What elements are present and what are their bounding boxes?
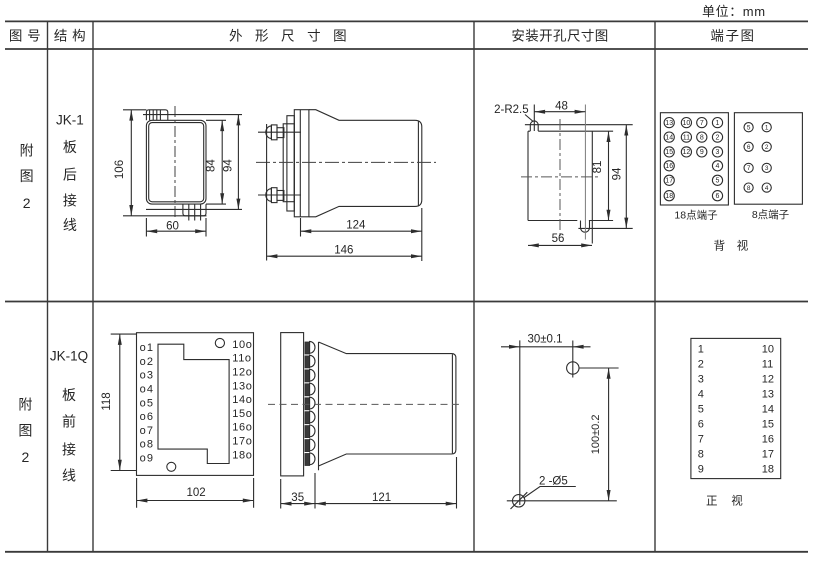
svg-text:11: 11	[683, 134, 690, 141]
svg-text:118: 118	[101, 392, 113, 410]
svg-text:线: 线	[63, 217, 77, 233]
svg-text:15: 15	[762, 419, 774, 431]
svg-text:14o: 14o	[232, 394, 252, 406]
svg-text:外 形 尺 寸 图: 外 形 尺 寸 图	[229, 29, 351, 44]
svg-text:60: 60	[166, 221, 179, 233]
svg-text:8: 8	[747, 185, 751, 192]
svg-text:11: 11	[762, 359, 773, 371]
svg-text:30±0.1: 30±0.1	[527, 333, 562, 345]
svg-text:接: 接	[62, 441, 76, 457]
svg-text:1: 1	[716, 120, 720, 127]
svg-text:2: 2	[765, 144, 769, 151]
svg-text:附: 附	[18, 397, 32, 413]
svg-text:3: 3	[716, 149, 720, 156]
svg-text:5: 5	[747, 124, 751, 131]
svg-text:o3: o3	[140, 370, 155, 382]
svg-text:11o: 11o	[232, 353, 251, 365]
svg-text:2: 2	[716, 134, 720, 141]
svg-text:2 -Ø5: 2 -Ø5	[539, 475, 568, 487]
svg-text:7: 7	[747, 165, 751, 172]
svg-text:JK-1Q: JK-1Q	[50, 348, 88, 363]
svg-text:图: 图	[20, 168, 34, 184]
svg-text:o1: o1	[140, 342, 155, 354]
svg-text:安装开孔尺寸图: 安装开孔尺寸图	[511, 29, 608, 44]
svg-text:12o: 12o	[232, 367, 252, 379]
svg-text:13o: 13o	[232, 380, 252, 392]
svg-text:o4: o4	[140, 384, 155, 396]
svg-text:附: 附	[20, 142, 34, 158]
svg-text:13: 13	[665, 120, 673, 127]
svg-text:17: 17	[665, 178, 673, 185]
svg-text:1: 1	[765, 124, 769, 131]
svg-text:后: 后	[63, 167, 77, 183]
svg-text:o6: o6	[140, 411, 155, 423]
svg-text:94: 94	[222, 159, 234, 172]
svg-text:10: 10	[762, 344, 774, 356]
svg-text:4: 4	[716, 163, 720, 170]
svg-text:121: 121	[372, 492, 391, 504]
svg-text:14: 14	[665, 134, 673, 141]
svg-text:16: 16	[762, 434, 774, 446]
svg-text:6: 6	[716, 193, 720, 200]
svg-text:48: 48	[555, 100, 568, 112]
svg-text:17o: 17o	[232, 436, 252, 448]
svg-text:板: 板	[62, 387, 76, 403]
svg-text:16: 16	[665, 163, 673, 170]
svg-text:12: 12	[762, 374, 774, 386]
svg-text:13: 13	[762, 389, 774, 401]
svg-text:o8: o8	[140, 439, 155, 451]
svg-text:9: 9	[698, 464, 704, 476]
svg-text:94: 94	[612, 167, 624, 180]
svg-text:35: 35	[291, 492, 304, 504]
svg-text:前: 前	[62, 413, 76, 429]
svg-text:端子图: 端子图	[710, 29, 755, 44]
svg-text:o5: o5	[140, 397, 155, 409]
svg-text:8: 8	[700, 134, 704, 141]
svg-text:6: 6	[747, 144, 751, 151]
svg-text:5: 5	[716, 178, 720, 185]
svg-text:3: 3	[698, 374, 704, 386]
svg-text:4: 4	[765, 185, 769, 192]
svg-text:线: 线	[62, 467, 76, 483]
svg-text:15: 15	[665, 149, 673, 156]
svg-text:2: 2	[22, 449, 30, 465]
svg-text:3: 3	[765, 165, 769, 172]
svg-text:124: 124	[346, 219, 366, 231]
svg-text:10o: 10o	[232, 339, 252, 351]
svg-text:4: 4	[698, 389, 704, 401]
svg-text:8点端子: 8点端子	[752, 208, 789, 221]
svg-text:9: 9	[700, 149, 704, 156]
svg-text:14: 14	[762, 404, 774, 416]
svg-text:84: 84	[206, 159, 218, 172]
svg-text:18: 18	[762, 464, 774, 476]
svg-text:146: 146	[334, 245, 353, 257]
svg-text:背 视: 背 视	[714, 239, 753, 253]
svg-text:7: 7	[700, 120, 704, 127]
svg-text:o7: o7	[140, 425, 155, 437]
svg-text:7: 7	[698, 434, 704, 446]
svg-text:15o: 15o	[232, 408, 252, 420]
svg-text:18点端子: 18点端子	[674, 209, 717, 222]
svg-text:o9: o9	[140, 453, 155, 465]
svg-text:5: 5	[698, 404, 704, 416]
svg-text:102: 102	[187, 487, 206, 499]
svg-text:2: 2	[698, 359, 704, 371]
svg-text:JK-1: JK-1	[56, 113, 84, 128]
svg-text:18: 18	[665, 193, 673, 200]
svg-text:100±0.2: 100±0.2	[590, 415, 602, 455]
svg-text:8: 8	[698, 449, 704, 461]
svg-text:接: 接	[63, 193, 77, 209]
svg-text:56: 56	[552, 233, 565, 245]
svg-text:图: 图	[18, 423, 32, 439]
svg-text:18o: 18o	[232, 449, 252, 461]
svg-text:12: 12	[683, 149, 691, 156]
svg-text:o2: o2	[140, 356, 155, 368]
svg-text:106: 106	[114, 160, 126, 179]
svg-text:6: 6	[698, 419, 704, 431]
svg-text:2-R2.5: 2-R2.5	[494, 104, 529, 116]
svg-text:1: 1	[698, 344, 704, 356]
svg-text:图 号: 图 号	[9, 29, 41, 44]
svg-text:正 视: 正 视	[706, 494, 748, 508]
svg-text:结 构: 结 构	[54, 29, 86, 44]
svg-text:单位：mm: 单位：mm	[702, 4, 766, 19]
svg-text:板: 板	[63, 139, 77, 155]
svg-text:2: 2	[23, 195, 31, 211]
svg-text:10: 10	[683, 120, 691, 127]
svg-text:17: 17	[762, 449, 774, 461]
svg-text:16o: 16o	[232, 422, 252, 434]
svg-text:81: 81	[592, 161, 604, 174]
